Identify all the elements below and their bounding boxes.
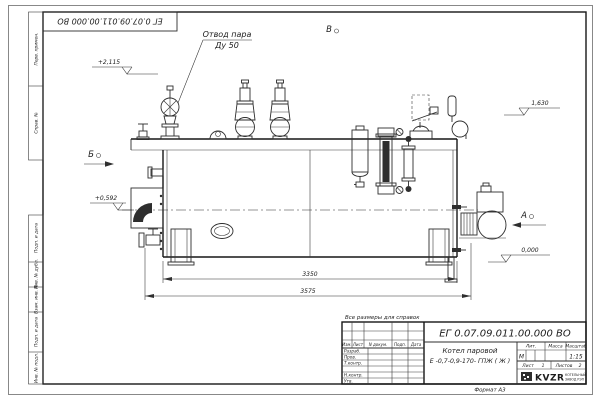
- safety-valve-1: [235, 80, 255, 139]
- border-label-inv-podl: Инв. № подл.: [34, 353, 40, 383]
- kvzr-logo: KVZR КОТЕЛЬНЫЙ ЗАВОД РЭП: [521, 372, 587, 384]
- steam-outlet-valve: [161, 86, 179, 139]
- reference-note: Все размеры для справок: [345, 315, 420, 321]
- row-razrab: Разраб.: [344, 349, 360, 354]
- lit-header: Лит.: [525, 344, 536, 350]
- sheets-word: Листов: [555, 363, 573, 369]
- border-label-podp-data-2: Подп. и дата: [34, 317, 40, 347]
- kvzr-logo-icon: [521, 372, 532, 381]
- product-name-line2: Е -0,7-0,9-170- ГПЖ ( Ж ): [430, 358, 510, 365]
- border-label-podp-data-1: Подп. и дата: [34, 223, 40, 253]
- feed-pump: [459, 183, 506, 239]
- kvzr-logo-sub2: ЗАВОД РЭП: [565, 378, 585, 382]
- row-utv: Утв.: [344, 379, 353, 384]
- doc-number: ЕГ 0.07.09.011.00.000 ВО: [439, 329, 571, 340]
- col-podp: Подп.: [394, 342, 406, 347]
- boiler-shell: [122, 139, 478, 257]
- boiler-view: [122, 80, 506, 282]
- view-marker-b-label: Б: [88, 150, 94, 160]
- scale-header: Масштаб: [565, 344, 587, 350]
- corner-stamp: ЕГ 0.07.09.011.00.000 ВО: [43, 12, 177, 31]
- corner-stamp-number: ЕГ 0.07.09.011.00.000 ВО: [57, 17, 162, 26]
- kvzr-logo-sub1: КОТЕЛЬНЫЙ: [565, 372, 587, 377]
- border-label-sprav-no: Справ. №: [34, 112, 40, 134]
- burner-assembly: [131, 167, 163, 247]
- row-tkontr: Т.контр.: [344, 361, 362, 366]
- border-label-vzam-inv: Взам. инв. №: [34, 284, 40, 314]
- row-prov: Пров.: [344, 355, 356, 360]
- drawing-sheet: Перв. примен. Справ. № Подп. и дата Инв.…: [0, 0, 600, 400]
- safety-valve-2: [270, 80, 290, 139]
- dimensions: 3350 3575: [145, 243, 471, 300]
- elevation-top-value: +2,115: [98, 59, 120, 66]
- view-marker-a: А: [512, 211, 546, 228]
- title-block: Все размеры для справок Изм. Лист N доку…: [342, 315, 587, 384]
- view-marker-v: В: [326, 25, 338, 35]
- elevation-right-lower-value: 0,000: [521, 247, 538, 254]
- scale-value: 1:15: [569, 354, 583, 361]
- elevation-mid-left-value: +0,592: [95, 195, 117, 202]
- dimension-3350: 3350: [163, 261, 457, 283]
- elevation-mid-left: +0,592: [90, 195, 134, 210]
- sheet-num: 1: [542, 363, 545, 369]
- steam-outlet-callout: Отвод пара Ду 50: [178, 30, 252, 103]
- col-list: Лист: [352, 342, 364, 347]
- left-border-strip: Перв. примен. Справ. № Подп. и дата Инв.…: [29, 12, 44, 384]
- lifting-lug: [210, 131, 226, 139]
- sheets-num: 2: [579, 363, 582, 369]
- row-nkontr: Н.контр.: [344, 373, 363, 378]
- product-name-line1: Котел паровой: [443, 347, 498, 355]
- support-front: [168, 229, 194, 265]
- lever-valve: [410, 95, 438, 139]
- boiler-drawing-svg: Перв. примен. Справ. № Подп. и дата Инв.…: [0, 0, 600, 400]
- level-column: [352, 126, 368, 187]
- callout-line1: Отвод пара: [203, 30, 252, 39]
- view-marker-v-label: В: [326, 25, 332, 35]
- sheet-word: Лист: [521, 363, 534, 369]
- elevation-right-upper: 1,630: [504, 100, 560, 115]
- kvzr-logo-text: KVZR: [535, 374, 564, 384]
- dimension-3575-value: 3575: [300, 288, 315, 295]
- gauge-glass: [402, 136, 415, 192]
- manhole: [211, 224, 233, 239]
- border-label-perv-primen: Перв. примен.: [34, 33, 40, 66]
- elevation-right-upper-value: 1,630: [531, 100, 548, 107]
- lit-value: М: [519, 354, 525, 361]
- view-marker-b: Б: [84, 150, 114, 167]
- elevation-right-lower: 0,000: [488, 247, 550, 262]
- col-izm: Изм.: [342, 342, 351, 347]
- elevation-top: +2,115: [92, 59, 158, 74]
- rear-flanges: [452, 205, 467, 252]
- view-marker-a-label: А: [520, 211, 527, 221]
- format-label: Формат А3: [474, 388, 506, 394]
- col-data: Дата: [410, 342, 422, 347]
- annotations: Отвод пара Ду 50 В Б А +2,115: [84, 25, 560, 262]
- siphon-loop: [448, 96, 468, 139]
- mass-header: Масса: [548, 344, 563, 350]
- small-left-valve: [137, 124, 149, 140]
- col-docum: N докум.: [369, 342, 388, 347]
- callout-line2: Ду 50: [214, 41, 239, 50]
- dimension-3350-value: 3350: [302, 271, 317, 278]
- water-gauge: [376, 128, 403, 194]
